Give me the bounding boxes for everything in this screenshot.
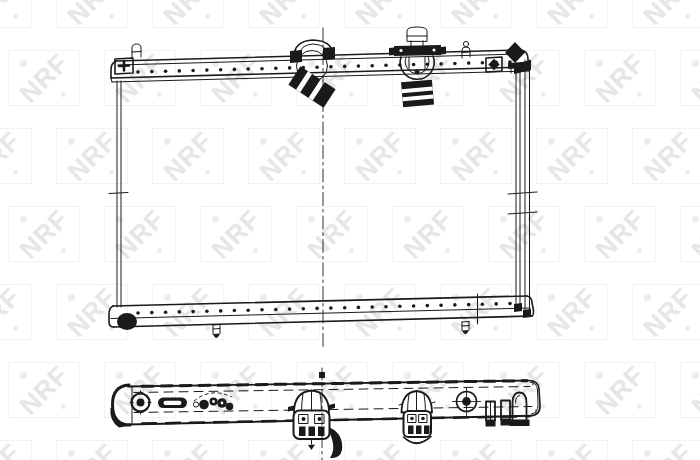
end-cap-right [530, 381, 538, 414]
bottom-pin-left [213, 325, 220, 338]
core-left-edge [109, 81, 128, 307]
bottom-bar [128, 380, 540, 424]
bullet-pin [510, 393, 530, 427]
hole-cluster [193, 393, 233, 410]
mounting-pin-top-left [132, 44, 141, 58]
second-connector [399, 391, 435, 443]
bottom-pin-right [462, 322, 469, 335]
crosshair-hole [453, 388, 481, 416]
outlet-connector [288, 368, 342, 460]
bottom-tank [109, 294, 534, 327]
filler-neck [389, 27, 446, 107]
front-view [109, 27, 537, 348]
end-cap-left [110, 385, 130, 428]
mounting-tab-2 [501, 401, 511, 426]
mounting-slot [158, 398, 187, 409]
radiator-technical-drawing [0, 0, 700, 460]
top-tank [111, 50, 529, 82]
mounting-tab-1 [486, 402, 496, 427]
bottom-view [110, 368, 540, 460]
side-channel-right [508, 60, 537, 318]
drain-plug [117, 313, 137, 330]
bolt-hole-ring [130, 391, 151, 414]
mounting-bracket-top-right [486, 57, 502, 72]
catalog-product-image: NRFNRFNRFNRFNRFNRFNRFNRFNRFNRFNRFNRFNRFN… [0, 0, 700, 460]
